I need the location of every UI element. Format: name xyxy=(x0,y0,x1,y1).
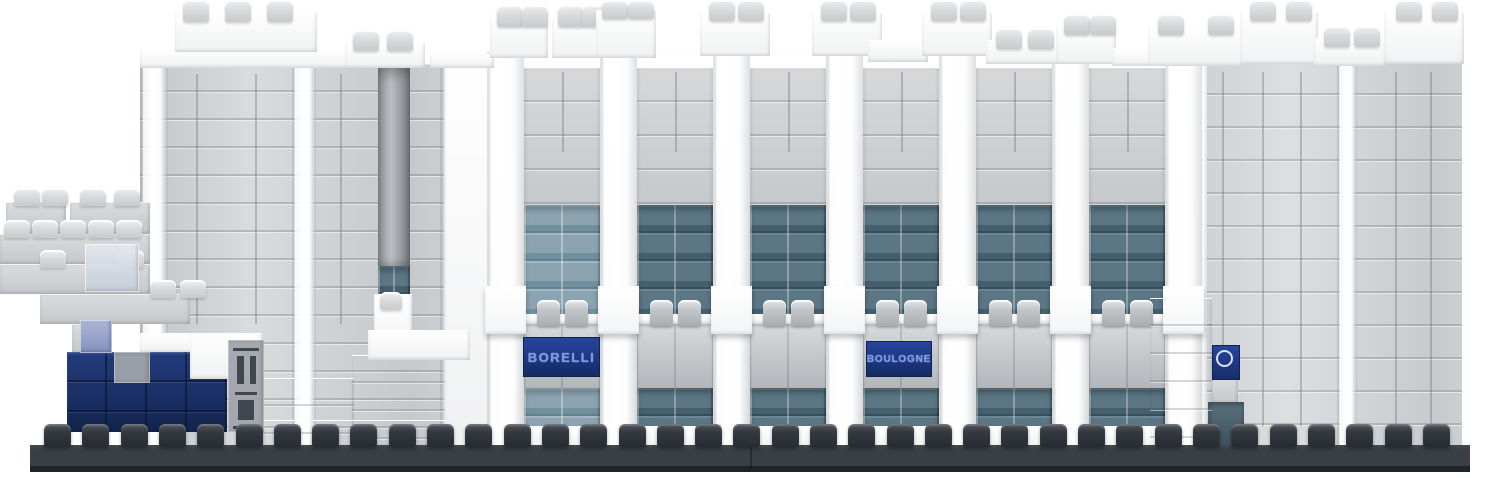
bay-tile-band xyxy=(1089,324,1165,388)
roof-stud xyxy=(497,5,523,27)
turnstile-print-detail xyxy=(238,400,254,420)
outbuilding-stud xyxy=(42,188,68,206)
roof-stud xyxy=(1158,14,1184,35)
facade-pillar xyxy=(600,52,637,448)
roof-brick xyxy=(1240,12,1318,64)
ledge-stud xyxy=(678,300,701,326)
outbuilding-stud xyxy=(80,188,106,206)
bay-tile-band xyxy=(976,324,1052,388)
facade-pillar xyxy=(713,52,750,448)
base-stud xyxy=(810,424,837,447)
roof-stud xyxy=(267,0,293,22)
roof-brick xyxy=(812,12,882,56)
roof-brick xyxy=(175,12,317,52)
bay-lower-window xyxy=(976,388,1052,426)
base-stud xyxy=(1116,424,1143,447)
roof-brick xyxy=(490,18,548,58)
base-stud xyxy=(1346,424,1373,447)
bay-seam xyxy=(788,72,790,152)
slot-base xyxy=(374,294,412,360)
roof-stud xyxy=(353,30,379,51)
ledge-stud xyxy=(565,300,588,326)
pillar-jut-brick xyxy=(1050,286,1091,334)
base-stud xyxy=(1040,424,1067,447)
turnstile-print-detail xyxy=(250,356,256,384)
bay-upper-wall xyxy=(1089,68,1165,205)
bay-base-brick xyxy=(863,426,939,448)
base-stud xyxy=(1231,424,1258,447)
facade-pillar xyxy=(826,52,863,448)
pillar-jut-brick xyxy=(824,286,865,334)
base-stud xyxy=(197,424,224,447)
base-stud xyxy=(733,424,760,447)
base-stud xyxy=(1001,424,1028,447)
tower-face xyxy=(140,64,487,448)
outbuilding-brick xyxy=(6,202,66,234)
bay-seam xyxy=(675,72,677,152)
roof-brick xyxy=(922,12,992,56)
facade-pillar xyxy=(1052,52,1089,448)
bay-upper-wall xyxy=(976,68,1052,205)
base-stud xyxy=(350,424,377,447)
bay-seam xyxy=(562,72,564,152)
bay-upper-window xyxy=(863,205,939,316)
base-stud xyxy=(1308,424,1335,447)
roof-stud xyxy=(183,0,209,22)
roof-stud xyxy=(960,0,986,21)
roof-stud xyxy=(582,5,608,27)
base-plate-seam xyxy=(750,447,752,468)
roof-stud xyxy=(1396,0,1422,21)
roof-stud xyxy=(1286,0,1312,21)
base-stud xyxy=(925,424,952,447)
bay-tile-band xyxy=(637,324,713,388)
outbuilding-stud xyxy=(180,280,206,298)
roof-brick xyxy=(368,330,470,360)
roof-stud xyxy=(225,0,251,22)
roof-brick xyxy=(1150,298,1212,448)
bay-tile-band xyxy=(750,324,826,388)
entrance-section xyxy=(0,0,1500,478)
recessed-slot xyxy=(378,64,410,266)
club-crest-ring-icon xyxy=(1216,350,1233,367)
white-pilaster xyxy=(1337,62,1357,446)
base-stud xyxy=(82,424,109,447)
roof-brick xyxy=(430,54,494,68)
base-stud xyxy=(848,424,875,447)
navy-brick-wall xyxy=(67,352,227,432)
brick-seam xyxy=(255,74,257,324)
brick-seam xyxy=(1430,72,1432,426)
base-stud xyxy=(427,424,454,447)
bay-ledge xyxy=(863,314,939,324)
outbuilding-brick xyxy=(40,294,190,324)
white-slab xyxy=(190,333,262,379)
right-grandstand xyxy=(0,0,1500,478)
roof-brick xyxy=(1384,12,1464,64)
white-slab xyxy=(140,333,262,353)
base-stud xyxy=(1423,424,1450,447)
bay-base-brick xyxy=(976,426,1052,448)
ledge-stud xyxy=(537,300,560,326)
roof-brick xyxy=(1148,26,1244,66)
roof-stud xyxy=(558,5,584,27)
brick-seam xyxy=(1262,72,1264,426)
outbuilding-brick xyxy=(72,324,112,354)
base-stud xyxy=(274,424,301,447)
bay-lower-window xyxy=(750,388,826,426)
roof-stud xyxy=(738,0,764,21)
outbuilding-stud xyxy=(32,220,58,238)
brick-seam xyxy=(196,74,198,324)
ledge-stud xyxy=(650,300,673,326)
base-stud xyxy=(619,424,646,447)
rooftop-bricks xyxy=(0,0,1500,478)
roof-stud xyxy=(1354,26,1380,47)
trans-blue-brick xyxy=(80,320,112,353)
base-stud xyxy=(542,424,569,447)
base-stud xyxy=(580,424,607,447)
boulogne-stand-sign: BOULOGNE xyxy=(866,341,932,377)
roof-stud xyxy=(1250,0,1276,21)
roof-stud xyxy=(602,0,628,19)
bay-upper-window xyxy=(976,205,1052,316)
base-stud xyxy=(389,424,416,447)
bay-seam xyxy=(1014,72,1016,152)
pillar-jut-brick xyxy=(711,286,752,334)
outbuilding-stud xyxy=(150,280,176,298)
base-stud xyxy=(1270,424,1297,447)
bay-base-brick xyxy=(637,426,713,448)
bay-upper-window xyxy=(637,205,713,316)
bay-upper-window xyxy=(524,205,600,316)
roof-stud xyxy=(850,0,876,21)
turnstile-print-detail xyxy=(237,356,244,384)
bay-upper-wall xyxy=(750,68,826,205)
outbuilding-stud xyxy=(88,220,114,238)
base-stud xyxy=(887,424,914,447)
base-stud xyxy=(236,424,263,447)
base-stud xyxy=(159,424,186,447)
white-pilaster xyxy=(140,64,168,448)
turnstile-panel xyxy=(228,340,264,432)
roof-brick xyxy=(1112,48,1188,66)
roof-stud xyxy=(709,0,735,21)
outbuilding-brick xyxy=(0,264,150,294)
base-stud xyxy=(772,424,799,447)
gray-tile xyxy=(1212,378,1238,404)
main-facade xyxy=(0,0,1500,478)
wing-face xyxy=(1180,62,1462,446)
borelli-stand-sign: BORELLI xyxy=(523,337,600,377)
base-stud xyxy=(504,424,531,447)
white-slab xyxy=(368,330,470,360)
pillar-jut-brick xyxy=(485,286,526,334)
facade-wall xyxy=(445,52,1207,448)
roof-stud xyxy=(387,30,413,51)
white-step-brick xyxy=(352,355,470,448)
base-stud xyxy=(963,424,990,447)
outbuilding-stud xyxy=(4,220,30,238)
outbuilding-stud xyxy=(118,250,144,268)
bay-upper-wall xyxy=(637,68,713,205)
base-stud xyxy=(1155,424,1182,447)
slot-stud xyxy=(380,292,402,310)
facade-pillar xyxy=(487,52,524,448)
ledge-stud xyxy=(876,300,899,326)
roof-stud xyxy=(628,0,654,19)
bay-lower-window xyxy=(524,388,600,426)
corner-outbuilding xyxy=(0,0,1500,478)
entrance-door xyxy=(1208,402,1244,446)
bay-ledge xyxy=(976,314,1052,324)
brick-seam xyxy=(1395,72,1397,426)
bay-upper-wall xyxy=(863,68,939,205)
bay-ledge xyxy=(524,314,600,324)
roof-brick xyxy=(552,18,608,58)
roof-stud xyxy=(1432,0,1458,21)
bay-ledge xyxy=(1089,314,1165,324)
ledge-stud xyxy=(904,300,927,326)
outbuilding-stud xyxy=(60,220,86,238)
white-pilaster xyxy=(292,64,316,448)
bay-ledge xyxy=(637,314,713,324)
pillar-jut-brick xyxy=(1163,286,1204,334)
bay-lower-window xyxy=(1089,388,1165,426)
ledge-stud xyxy=(1017,300,1040,326)
turnstile-print-detail xyxy=(233,348,259,351)
roof-stud xyxy=(1028,28,1054,49)
slot-window xyxy=(378,266,410,298)
bay-base-brick xyxy=(1089,426,1165,448)
ledge-stud xyxy=(989,300,1012,326)
ledge-stud xyxy=(1130,300,1153,326)
base-stud xyxy=(312,424,339,447)
pillar-jut-brick xyxy=(937,286,978,334)
bay-upper-wall xyxy=(524,68,600,205)
bay-lower-window xyxy=(863,388,939,426)
outbuilding-stud xyxy=(116,220,142,238)
roof-stud xyxy=(931,0,957,21)
roof-stud xyxy=(1064,14,1090,35)
roof-brick xyxy=(986,40,1060,64)
roof-brick xyxy=(140,50,352,68)
pillar-jut-brick xyxy=(598,286,639,334)
ledge-stud xyxy=(791,300,814,326)
roof-stud xyxy=(1324,26,1350,47)
printed-machine-brick xyxy=(114,352,150,383)
outbuilding-stud xyxy=(114,188,140,206)
bay-upper-window xyxy=(1089,205,1165,316)
base-stud xyxy=(695,424,722,447)
roof-brick xyxy=(868,40,928,62)
brick-seam xyxy=(340,74,342,324)
turnstile-print-detail xyxy=(235,392,257,395)
facade-pillar xyxy=(939,52,976,448)
roof-brick xyxy=(596,10,656,58)
roof-stud xyxy=(996,28,1022,49)
roof-stud xyxy=(522,5,548,27)
left-grandstand xyxy=(0,0,1500,478)
outbuilding-stud xyxy=(14,188,40,206)
base-stud xyxy=(1385,424,1412,447)
bay-upper-window xyxy=(750,205,826,316)
clear-brick-assembly xyxy=(85,244,139,292)
stadium-brick-model-photo: BORELLI BOULOGNE xyxy=(0,0,1500,478)
roof-brick xyxy=(700,12,770,56)
ledge-stud xyxy=(1102,300,1125,326)
base-stud xyxy=(465,424,492,447)
outbuilding-brick xyxy=(0,234,150,264)
facade-pillar xyxy=(1165,52,1202,448)
base-plate xyxy=(30,445,1470,472)
base-stud xyxy=(657,424,684,447)
base-stud xyxy=(121,424,148,447)
roof-stud xyxy=(821,0,847,21)
bay-seam xyxy=(1127,72,1129,152)
bay-ledge xyxy=(750,314,826,324)
bay-base-brick xyxy=(750,426,826,448)
roof-stud xyxy=(1208,14,1234,35)
roof-brick xyxy=(1056,26,1116,64)
base-stud xyxy=(1078,424,1105,447)
ledge-stud xyxy=(763,300,786,326)
base-plate-group xyxy=(0,0,1500,478)
white-step-brick xyxy=(262,378,354,448)
base-stud xyxy=(1193,424,1220,447)
outbuilding-stud xyxy=(40,250,66,268)
turnstile-print-detail xyxy=(233,426,259,429)
bay-lower-window xyxy=(637,388,713,426)
base-stud xyxy=(44,424,71,447)
club-crest-tile xyxy=(1212,345,1240,380)
bay-base-brick xyxy=(524,426,600,448)
brick-seam xyxy=(1300,72,1302,426)
roof-stud xyxy=(1090,14,1116,35)
white-step-brick xyxy=(262,420,470,448)
outbuilding-brick xyxy=(70,202,150,234)
roof-brick xyxy=(1314,38,1386,66)
bay-seam xyxy=(901,72,903,152)
roof-brick xyxy=(345,42,425,68)
white-pilaster xyxy=(440,64,487,448)
